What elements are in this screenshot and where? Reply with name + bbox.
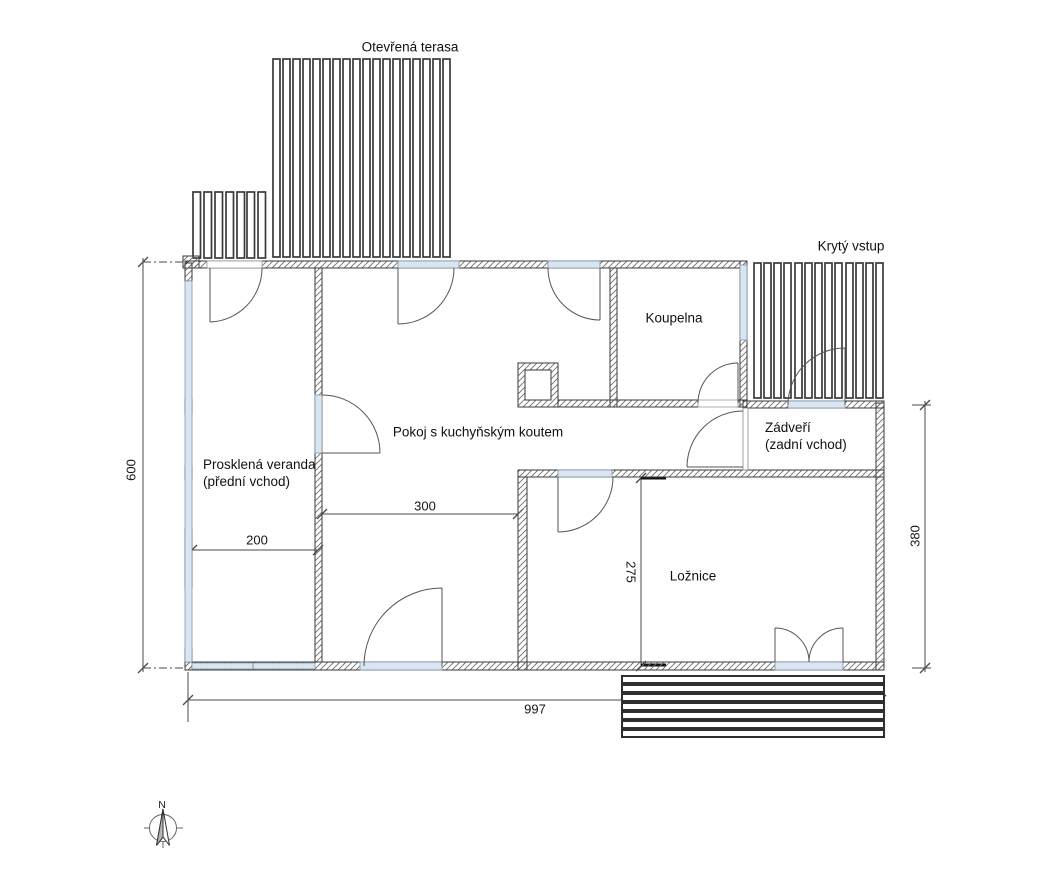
room-label-veranda-subtitle: (přední vchod)	[203, 473, 316, 490]
floor-plan-drawing	[0, 0, 1038, 888]
room-label-vestibule-name: Zádveří	[765, 420, 847, 437]
room-label-bedroom: Ložnice	[670, 569, 717, 584]
dimension-label-380: 380	[908, 525, 923, 547]
dimension-label-200: 200	[246, 533, 268, 548]
dimension-label-275: 275	[624, 561, 639, 583]
covered-entry-planks	[754, 263, 883, 398]
terrace-planks-top	[193, 59, 450, 258]
kitchen-column-inner	[525, 370, 551, 400]
label-covered-entry: Krytý vstup	[818, 239, 885, 254]
dimension-label-600: 600	[124, 459, 139, 481]
room-label-veranda-name: Prosklená veranda	[203, 456, 316, 473]
room-label-bathroom: Koupelna	[645, 311, 702, 326]
room-label-vestibule-subtitle: (zadní vchod)	[765, 437, 847, 454]
compass-rose	[144, 809, 183, 848]
dimension-label-997: 997	[524, 702, 546, 717]
label-open-terrace: Otevřená terasa	[362, 40, 459, 55]
floor-plan-canvas: Otevřená terasa Krytý vstup Prosklená ve…	[0, 0, 1038, 888]
compass-north-label: N	[158, 799, 166, 811]
room-label-living-kitchen: Pokoj s kuchyňským koutem	[393, 425, 563, 440]
dimension-label-300: 300	[414, 499, 436, 514]
room-label-veranda: Prosklená veranda (přední vchod)	[203, 456, 316, 490]
bottom-terrace-planks	[622, 676, 884, 737]
room-label-vestibule: Zádveří (zadní vchod)	[765, 420, 847, 453]
